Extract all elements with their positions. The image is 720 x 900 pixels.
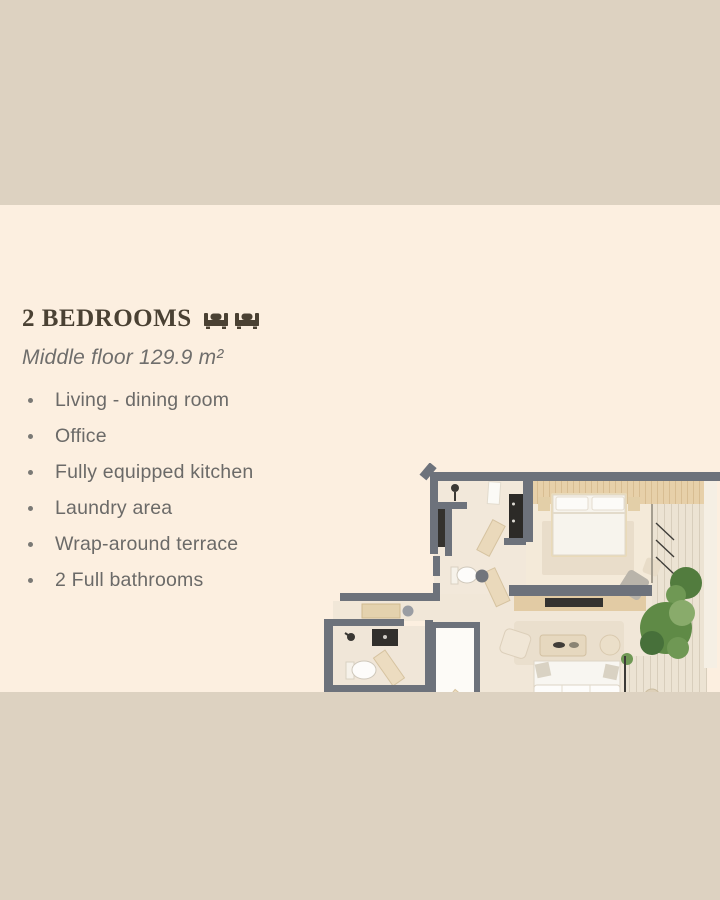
- shower-head: [451, 484, 459, 492]
- bullet-dot: [28, 506, 33, 511]
- feature-item: Fully equipped kitchen: [22, 454, 322, 490]
- bottom-band: [0, 692, 720, 900]
- towel: [487, 482, 501, 505]
- small-plant: [621, 653, 633, 665]
- title-icons: [204, 310, 259, 329]
- pillow: [556, 497, 588, 510]
- feature-list: Living - dining room Office Fully equipp…: [22, 382, 322, 598]
- feature-item: Wrap-around terrace: [22, 526, 322, 562]
- bullet-dot: [28, 578, 33, 583]
- bullet-dot: [28, 542, 33, 547]
- nightstand: [538, 497, 550, 511]
- stool: [403, 606, 414, 617]
- page-title: 2 BEDROOMS: [22, 305, 322, 333]
- feature-item: Laundry area: [22, 490, 322, 526]
- master-bedroom: [538, 493, 640, 575]
- toilet: [352, 661, 376, 679]
- bullet-dot: [28, 434, 33, 439]
- pouf: [600, 635, 620, 655]
- nightstand: [628, 497, 640, 511]
- bullet-dot: [28, 470, 33, 475]
- terrace-side-wall: [704, 478, 717, 668]
- top-band: [0, 0, 720, 205]
- feature-item: Office: [22, 418, 322, 454]
- content-panel: 2 BEDROOMS: [0, 205, 720, 692]
- feature-item: Living - dining room: [22, 382, 322, 418]
- sofa-pillow: [535, 662, 552, 679]
- laundry-area: [362, 604, 414, 618]
- feature-item: 2 Full bathrooms: [22, 562, 322, 598]
- subtitle: Middle floor 129.9 m²: [22, 346, 322, 370]
- bullet-dot: [28, 398, 33, 403]
- stool: [476, 570, 489, 583]
- toilet: [457, 567, 477, 583]
- laundry-bench: [362, 604, 400, 618]
- sofa-pillow: [603, 664, 620, 681]
- tv: [545, 598, 603, 607]
- bed-icon: [235, 310, 259, 329]
- pillow: [592, 497, 624, 510]
- bed-icon: [204, 310, 228, 329]
- title-text: 2 BEDROOMS: [22, 305, 192, 333]
- info-block: 2 BEDROOMS: [22, 305, 322, 598]
